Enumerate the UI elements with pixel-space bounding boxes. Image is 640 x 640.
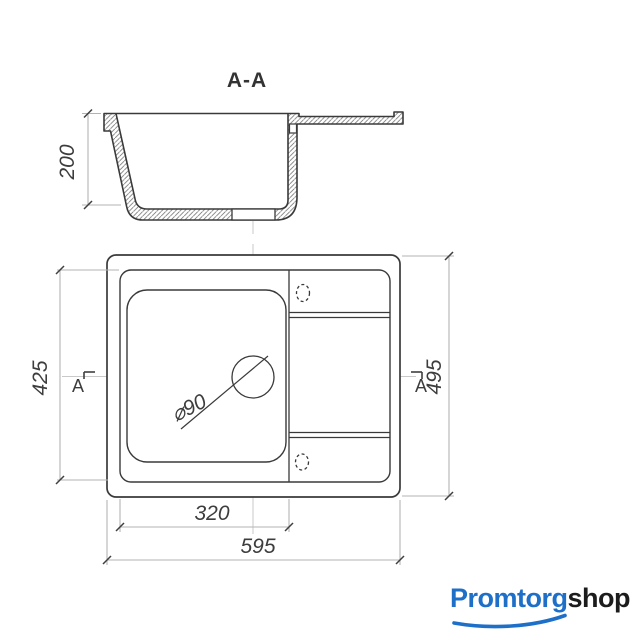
- sink-dimension-drawing: A-A 200: [0, 0, 640, 640]
- outer-length-dim-label: 595: [240, 535, 275, 558]
- sink-cross-section-profile: [104, 112, 403, 220]
- outer-width-dim-label: 495: [423, 359, 446, 394]
- section-marker-left: A: [72, 372, 95, 396]
- bowl-length-dim-label: 320: [194, 502, 229, 525]
- promtorgshop-logo: Promtorgshop: [450, 585, 620, 629]
- section-view: A-A 200: [56, 69, 403, 234]
- logo-text-secondary: shop: [568, 583, 631, 613]
- dimension-inner-length-425: 425: [29, 266, 119, 484]
- logo-text: Promtorgshop: [450, 585, 620, 612]
- plan-view: ⌀90 A A 425: [29, 244, 454, 565]
- section-marker-left-label: A: [72, 376, 84, 396]
- dimension-bowl-length-320: 320: [116, 499, 293, 532]
- drain-recess: [232, 209, 275, 220]
- section-title: A-A: [227, 69, 267, 92]
- junction-notch: [290, 124, 297, 133]
- depth-dim-label: 200: [56, 144, 79, 180]
- logo-text-primary: Promtorg: [450, 583, 568, 613]
- sink-outer-outline: [107, 255, 400, 497]
- inner-length-dim-label: 425: [29, 360, 52, 395]
- logo-swoosh: [451, 611, 601, 629]
- technical-drawing-page: A-A 200: [0, 0, 640, 640]
